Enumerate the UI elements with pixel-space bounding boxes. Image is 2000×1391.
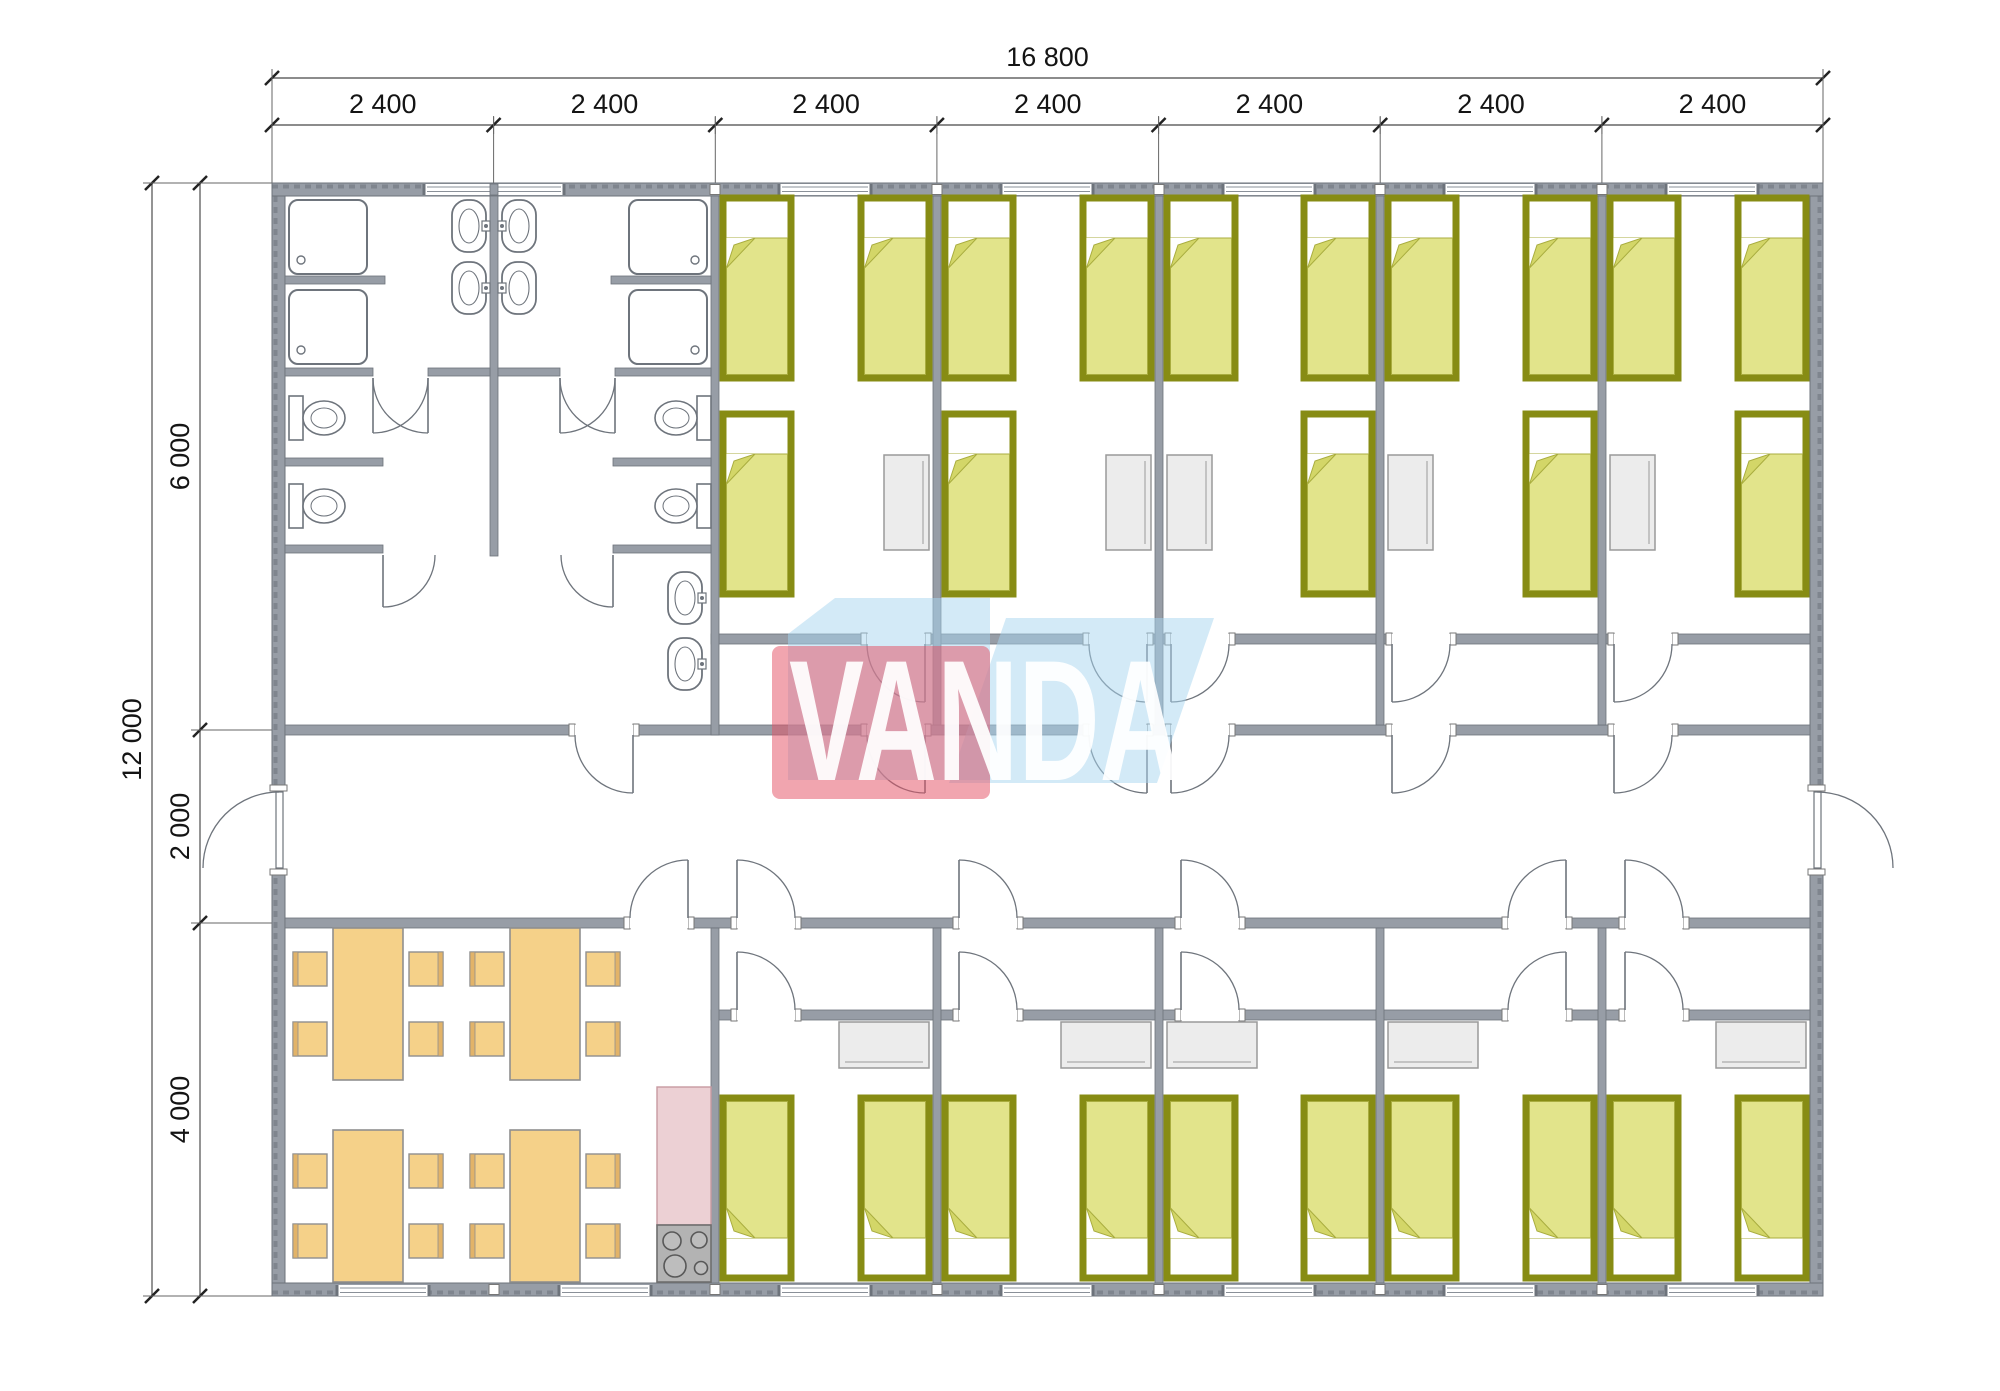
interior-wall <box>611 276 711 284</box>
dimension-label: 4 000 <box>165 1076 195 1144</box>
module-joint <box>1154 1285 1164 1295</box>
kitchen-counter <box>657 1087 711 1225</box>
module-joint <box>1597 1285 1607 1295</box>
interior-wall <box>285 545 383 553</box>
bed <box>1083 1098 1151 1278</box>
nightstand <box>1610 455 1655 550</box>
dining-table <box>510 1130 580 1282</box>
door-opening <box>1392 725 1450 735</box>
door-jamb <box>1450 633 1456 645</box>
window-end <box>1535 184 1538 195</box>
bed <box>1738 1098 1806 1278</box>
window-end <box>1000 184 1003 195</box>
door-jamb <box>1672 724 1678 736</box>
module-joint <box>710 185 720 195</box>
toilet-bowl <box>303 489 345 523</box>
window-end <box>1535 1285 1538 1296</box>
interior-wall <box>1566 1010 1625 1020</box>
bed <box>1388 1098 1456 1278</box>
interior-wall <box>1598 196 1606 725</box>
door-swing-arc <box>1181 952 1239 1010</box>
washbasin <box>668 638 702 690</box>
washbasin <box>502 262 536 314</box>
door-swing-arc <box>737 860 795 918</box>
door-jamb <box>1175 1009 1181 1021</box>
window-end <box>1092 184 1095 195</box>
washbasin <box>668 572 702 624</box>
door-swing-arc <box>1625 952 1683 1010</box>
window <box>1001 1285 1093 1296</box>
chair-backrest <box>293 952 298 986</box>
window-end <box>1314 184 1317 195</box>
interior-wall <box>1155 928 1163 1283</box>
door-jamb <box>1386 633 1392 645</box>
door-jamb <box>270 785 287 791</box>
faucet-icon <box>484 224 488 228</box>
door-swing-arc <box>1508 860 1566 918</box>
chair-backrest <box>293 1224 298 1258</box>
bed <box>1304 414 1372 594</box>
wardrobe <box>1388 1022 1478 1068</box>
window-end <box>1443 1285 1446 1296</box>
window-end <box>778 184 781 195</box>
door-swing-arc <box>1508 952 1566 1010</box>
window-end <box>1757 184 1760 195</box>
wardrobe <box>1716 1022 1806 1068</box>
module-joint <box>932 185 942 195</box>
bed <box>861 1098 929 1278</box>
bed <box>945 198 1013 378</box>
door-swing-arc <box>1614 644 1672 702</box>
door-swing-arc <box>560 378 615 433</box>
door-opening <box>959 1010 1017 1020</box>
door-jamb <box>633 724 639 736</box>
window <box>1223 1285 1315 1296</box>
door-jamb <box>1683 1009 1689 1021</box>
logo-text: VANDA <box>789 625 1181 817</box>
bed <box>1738 414 1806 594</box>
bed <box>723 1098 791 1278</box>
window-mullion <box>490 184 498 195</box>
bed <box>1526 414 1594 594</box>
window-end <box>558 1285 561 1296</box>
stove-burner-icon <box>663 1232 681 1250</box>
module-joint <box>1375 1285 1385 1295</box>
dimension-label: 2 000 <box>165 793 195 861</box>
washbasin <box>452 200 486 252</box>
door-jamb <box>1229 724 1235 736</box>
washbasin <box>452 262 486 314</box>
bed <box>1388 198 1456 378</box>
chair-backrest <box>470 1154 475 1188</box>
bed <box>1526 198 1594 378</box>
chair-backrest <box>615 1154 620 1188</box>
dimension-label: 16 800 <box>1006 42 1089 72</box>
bed <box>1738 198 1806 378</box>
door-swing-arc <box>1817 792 1893 868</box>
bed <box>1167 1098 1235 1278</box>
door-opening <box>1614 725 1672 735</box>
chair-backrest <box>293 1154 298 1188</box>
interior-wall <box>711 928 719 1283</box>
door-jamb <box>731 1009 737 1021</box>
chair-backrest <box>438 1022 443 1056</box>
door-swing-arc <box>1392 644 1450 702</box>
faucet-icon <box>500 224 504 228</box>
dimension-label: 12 000 <box>117 698 147 781</box>
door-swing-arc <box>561 555 613 607</box>
chair-backrest <box>293 1022 298 1056</box>
door-jamb <box>624 917 630 929</box>
bed <box>945 414 1013 594</box>
window-end <box>1314 1285 1317 1296</box>
window <box>779 184 871 195</box>
door-swing-arc <box>373 378 428 433</box>
door-jamb <box>1672 633 1678 645</box>
window-end <box>423 184 426 195</box>
module-joint <box>1597 185 1607 195</box>
interior-wall <box>933 928 941 1283</box>
door-swing-arc <box>959 952 1017 1010</box>
floor-plan-page: 16 8002 4002 4002 4002 4002 4002 4002 40… <box>0 0 2000 1391</box>
interior-wall <box>285 276 385 284</box>
door-jamb <box>1017 1009 1023 1021</box>
faucet-icon <box>700 662 704 666</box>
door-swing-arc <box>1625 860 1683 918</box>
door-jamb <box>1566 1009 1572 1021</box>
window-end <box>1665 184 1668 195</box>
interior-wall <box>1672 725 1810 735</box>
floor-plan-drawing: 16 8002 4002 4002 4002 4002 4002 4002 40… <box>0 0 2000 1391</box>
dimension-label: 2 400 <box>1457 89 1525 119</box>
interior-wall <box>1683 1010 1810 1020</box>
door-jamb <box>1175 917 1181 929</box>
toilet-tank <box>697 484 711 528</box>
door-jamb <box>1239 1009 1245 1021</box>
stove-burner-icon <box>691 1232 707 1248</box>
dimension-label: 2 400 <box>1236 89 1304 119</box>
wardrobe <box>1061 1022 1151 1068</box>
interior-wall <box>1450 634 1614 644</box>
door-opening <box>1181 1010 1239 1020</box>
dimension-label: 2 400 <box>1679 89 1747 119</box>
door-jamb <box>1619 1009 1625 1021</box>
exterior-door-leaf <box>276 792 283 868</box>
door-jamb <box>569 724 575 736</box>
bed <box>1610 1098 1678 1278</box>
toilet-bowl <box>655 489 697 523</box>
door-swing-arc <box>630 860 688 918</box>
bed <box>1526 1098 1594 1278</box>
interior-wall <box>1239 1010 1508 1020</box>
bed <box>861 198 929 378</box>
interior-wall <box>1683 918 1810 928</box>
interior-wall <box>285 368 373 376</box>
bed <box>723 198 791 378</box>
nightstand <box>1106 455 1151 550</box>
door-opening <box>1392 634 1450 644</box>
dimension-label: 2 400 <box>792 89 860 119</box>
door-jamb <box>1502 917 1508 929</box>
window-end <box>1665 1285 1668 1296</box>
interior-wall <box>688 918 737 928</box>
interior-wall <box>795 918 959 928</box>
interior-wall <box>1376 928 1384 1283</box>
window-end <box>1222 184 1225 195</box>
door-jamb <box>1808 869 1825 875</box>
interior-wall <box>615 368 711 376</box>
toilet-tank <box>289 484 303 528</box>
window-end <box>1000 1285 1003 1296</box>
door-opening <box>737 918 795 928</box>
chair-backrest <box>470 1224 475 1258</box>
window <box>779 1285 871 1296</box>
sanitary-fixtures <box>289 200 711 690</box>
window <box>1444 184 1536 195</box>
toilet-tank <box>697 396 711 440</box>
chair-backrest <box>470 1022 475 1056</box>
interior-wall <box>1017 918 1181 928</box>
toilet-bowl <box>303 401 345 435</box>
bed <box>1304 1098 1372 1278</box>
window-end <box>1757 1285 1760 1296</box>
interior-wall <box>1376 196 1384 725</box>
door-swing-arc <box>383 555 435 607</box>
door-opening <box>737 1010 795 1020</box>
door-jamb <box>1608 724 1614 736</box>
interior-wall <box>613 458 711 466</box>
window <box>1666 1285 1758 1296</box>
door-jamb <box>1239 917 1245 929</box>
window-end <box>563 184 566 195</box>
window-end <box>778 1285 781 1296</box>
door-swing-arc <box>1392 735 1450 793</box>
door-jamb <box>1608 633 1614 645</box>
nightstand <box>1167 455 1212 550</box>
dimension-label: 6 000 <box>165 423 195 491</box>
faucet-icon <box>484 286 488 290</box>
chair-backrest <box>438 1154 443 1188</box>
door-opening <box>959 918 1017 928</box>
window-end <box>870 1285 873 1296</box>
dining-table <box>333 928 403 1080</box>
window <box>559 1285 651 1296</box>
interior-wall <box>613 545 711 553</box>
door-jamb <box>953 917 959 929</box>
dimension-label: 2 400 <box>1014 89 1082 119</box>
interior-wall <box>285 458 383 466</box>
door-opening <box>575 725 633 735</box>
door-swing-arc <box>737 952 795 1010</box>
chair-backrest <box>470 952 475 986</box>
door-jamb <box>795 1009 801 1021</box>
chair-backrest <box>438 1224 443 1258</box>
door-swing-arc <box>575 735 633 793</box>
door-jamb <box>795 917 801 929</box>
bed <box>1304 198 1372 378</box>
nightstand <box>884 455 929 550</box>
toilet-tank <box>289 396 303 440</box>
door-jamb <box>1017 917 1023 929</box>
shower <box>629 290 707 364</box>
door-jamb <box>1808 785 1825 791</box>
nightstand <box>1388 455 1433 550</box>
faucet-icon <box>500 286 504 290</box>
dimension-label: 2 400 <box>349 89 417 119</box>
window-end <box>428 1285 431 1296</box>
door-jamb <box>1502 1009 1508 1021</box>
interior-wall <box>498 368 560 376</box>
interior-wall <box>490 196 498 556</box>
door-opening <box>1625 1010 1683 1020</box>
exterior-door-leaf <box>1814 792 1821 868</box>
dining-table <box>333 1130 403 1282</box>
window-end <box>336 1285 339 1296</box>
window-end <box>650 1285 653 1296</box>
stove-burner-icon <box>695 1262 708 1275</box>
door-jamb <box>1619 917 1625 929</box>
window <box>1001 184 1093 195</box>
door-opening <box>1614 634 1672 644</box>
door-jamb <box>1683 917 1689 929</box>
door-opening <box>1625 918 1683 928</box>
door-opening <box>1508 1010 1566 1020</box>
door-jamb <box>731 917 737 929</box>
door-swing-arc <box>1614 735 1672 793</box>
window-end <box>870 184 873 195</box>
door-jamb <box>1566 917 1572 929</box>
interior-wall <box>711 196 719 735</box>
interior-wall <box>1229 725 1392 735</box>
dining-table <box>510 928 580 1080</box>
module-joint <box>710 1285 720 1295</box>
washbasin <box>502 200 536 252</box>
interior-wall <box>1239 918 1508 928</box>
wardrobe <box>839 1022 929 1068</box>
toilet-bowl <box>655 401 697 435</box>
vanda-logo: VANDA <box>772 598 1214 817</box>
window <box>337 1285 429 1296</box>
window <box>1444 1285 1536 1296</box>
door-opening <box>1181 918 1239 928</box>
interior-wall <box>285 918 630 928</box>
faucet-icon <box>700 596 704 600</box>
door-jamb <box>953 1009 959 1021</box>
door-jamb <box>1229 633 1235 645</box>
chair-backrest <box>615 952 620 986</box>
module-joint <box>489 1285 499 1295</box>
dimension-label: 2 400 <box>571 89 639 119</box>
window-end <box>1443 184 1446 195</box>
window <box>1666 184 1758 195</box>
module-joint <box>932 1285 942 1295</box>
shower <box>629 200 707 274</box>
wardrobe <box>1167 1022 1257 1068</box>
interior-wall <box>285 725 575 735</box>
interior-wall <box>1566 918 1625 928</box>
door-jamb <box>1450 724 1456 736</box>
bed <box>723 414 791 594</box>
door-swing-arc <box>203 792 279 868</box>
interior-wall <box>428 368 490 376</box>
window <box>1223 184 1315 195</box>
bed <box>1083 198 1151 378</box>
bed <box>1167 198 1235 378</box>
shower <box>289 290 367 364</box>
module-joint <box>1375 185 1385 195</box>
bed <box>945 1098 1013 1278</box>
interior-wall <box>1672 634 1810 644</box>
door-jamb <box>1386 724 1392 736</box>
door-swing-arc <box>959 860 1017 918</box>
door-opening <box>630 918 688 928</box>
door-opening <box>1508 918 1566 928</box>
chair-backrest <box>615 1022 620 1056</box>
module-joint <box>1154 185 1164 195</box>
window-end <box>1222 1285 1225 1296</box>
shower <box>289 200 367 274</box>
door-jamb <box>270 869 287 875</box>
chair-backrest <box>615 1224 620 1258</box>
door-jamb <box>688 917 694 929</box>
interior-wall <box>1229 634 1392 644</box>
chair-backrest <box>438 952 443 986</box>
interior-wall <box>1598 928 1606 1283</box>
door-swing-arc <box>1181 860 1239 918</box>
window-end <box>1092 1285 1095 1296</box>
door-swing-arc <box>373 378 428 433</box>
bed <box>1610 198 1678 378</box>
interior-wall <box>1450 725 1614 735</box>
door-swing-arc <box>560 378 615 433</box>
stove-burner-icon <box>664 1255 686 1277</box>
